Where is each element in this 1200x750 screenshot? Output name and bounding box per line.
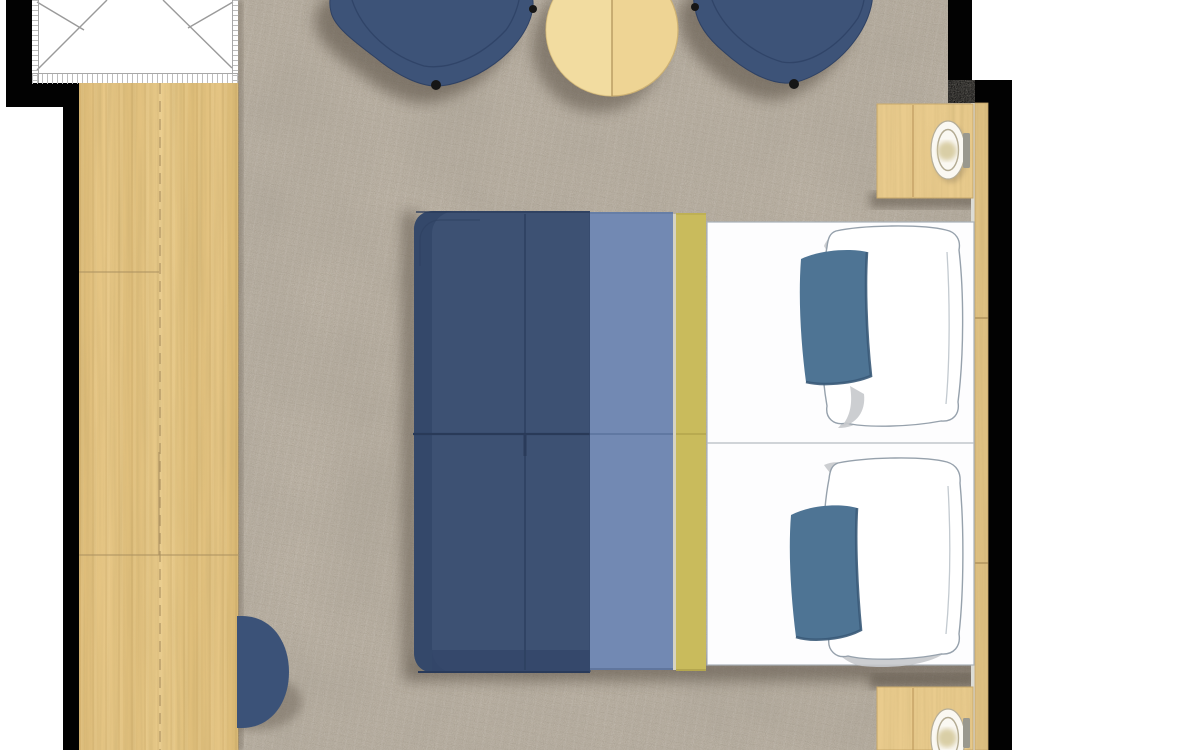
nightstand-bottom	[877, 687, 973, 750]
runner-gap	[673, 214, 676, 670]
floor-plan	[0, 0, 1200, 750]
pillow-blue-top	[800, 250, 871, 384]
runner-light-blue	[590, 212, 673, 670]
pillow-blue-bottom	[790, 505, 861, 639]
double-bed	[413, 211, 974, 673]
scene-layer	[0, 0, 1200, 750]
wall-switch-bottom	[963, 718, 970, 748]
nightstand-top	[877, 104, 973, 198]
runner-yellow	[676, 213, 706, 671]
wardrobe-grain	[79, 83, 238, 750]
duvet	[413, 211, 590, 673]
wall-switch-top	[963, 133, 970, 168]
